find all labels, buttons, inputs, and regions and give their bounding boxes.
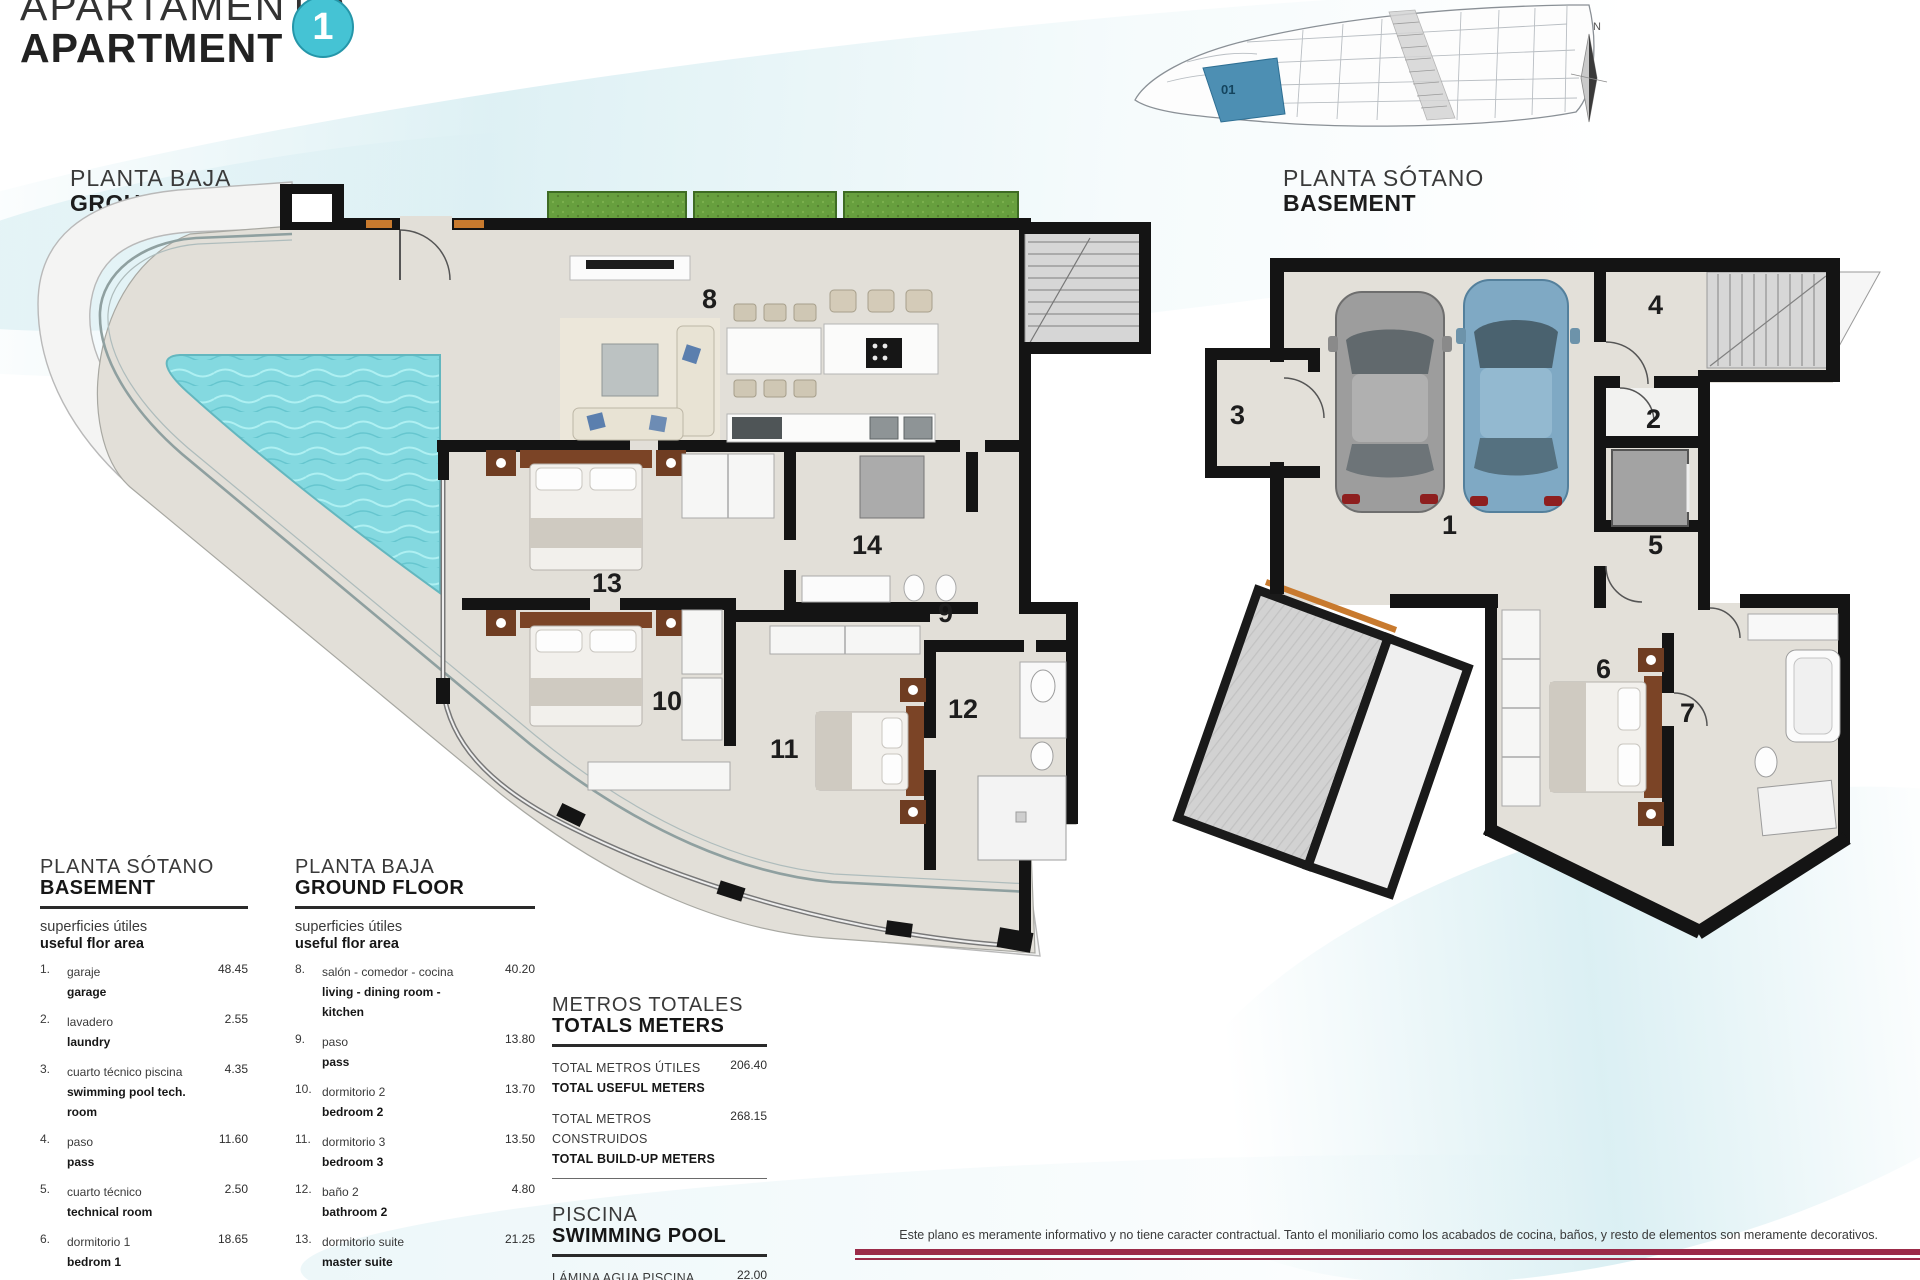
rear-window <box>1474 438 1558 476</box>
ground-floor-plan: 8 9 10 11 12 13 14 <box>30 178 1180 968</box>
room-number: 11 <box>770 734 799 764</box>
roof <box>1480 368 1552 438</box>
tail-light <box>1470 496 1488 506</box>
legend-row: 6.dormitorio 1bedrom 118.65 <box>40 1232 248 1272</box>
blanket <box>530 518 642 548</box>
mirror <box>1570 328 1580 344</box>
room-number: 6 <box>1596 654 1611 684</box>
basement-floor-plan: 1 2 3 4 5 6 7 <box>1150 178 1920 978</box>
room-number: 5 <box>1648 530 1663 560</box>
sink <box>1031 670 1055 702</box>
pool-heading-en: SWIMMING POOL <box>552 1226 767 1247</box>
rule <box>295 906 535 909</box>
legend-table-ground: PLANTA BAJA GROUND FLOOR superficies úti… <box>295 857 535 1280</box>
legend-row: 4.pasopass11.60 <box>40 1132 248 1172</box>
rule <box>552 1254 767 1257</box>
rear-window <box>1346 444 1434 478</box>
totals-row: TOTAL METROS ÚTILESTOTAL USEFUL METERS20… <box>552 1058 767 1098</box>
staircase <box>1019 222 1151 354</box>
windshield <box>1346 330 1434 375</box>
site-outline <box>1135 5 1594 126</box>
tv-screen <box>586 260 674 269</box>
totals-row: TOTAL METROS CONSTRUIDOSTOTAL BUILD-UP M… <box>552 1109 767 1169</box>
room-number: 3 <box>1230 400 1245 430</box>
legend-row: 9.pasopass13.80 <box>295 1032 535 1072</box>
toilet <box>904 575 924 601</box>
room-number: 8 <box>702 284 717 314</box>
legend-row: 5.cuarto técnicotechnical room2.50 <box>40 1182 248 1222</box>
room-number: 12 <box>948 694 978 724</box>
closet <box>682 678 722 740</box>
tail-light <box>1420 494 1438 504</box>
legend-table-basement: PLANTA SÓTANO BASEMENT superficies útile… <box>40 857 248 1280</box>
pillow <box>1618 744 1640 786</box>
pillow <box>882 718 902 748</box>
shower-drain <box>1016 812 1026 822</box>
legend-heading-es: PLANTA SÓTANO <box>40 857 248 878</box>
roof <box>1352 374 1428 442</box>
pillow <box>536 630 582 652</box>
legend-subheading-en: useful flor area <box>295 936 535 953</box>
coffee-table <box>602 344 658 396</box>
room-number: 14 <box>852 530 882 560</box>
headboard <box>1644 676 1662 798</box>
blanket <box>1550 682 1586 792</box>
toilet <box>1031 742 1053 770</box>
room-number: 13 <box>592 568 622 598</box>
staircase <box>1707 272 1880 368</box>
room-number: 1 <box>1442 510 1457 540</box>
mirror <box>1328 336 1338 352</box>
totals-heading-en: TOTALS METERS <box>552 1016 767 1037</box>
grass-planters <box>548 192 1018 219</box>
closet <box>682 610 722 674</box>
legend-row: 3.cuarto técnico piscinaswimming pool te… <box>40 1062 248 1122</box>
blanket <box>816 712 852 790</box>
entry-recess <box>292 194 332 222</box>
dining-table <box>727 328 821 374</box>
rule <box>40 906 248 909</box>
bar-stools <box>830 290 932 312</box>
shower <box>860 456 924 518</box>
car-blue <box>1456 280 1580 512</box>
divider-line-thick <box>855 1249 1920 1255</box>
elevator <box>1612 450 1688 526</box>
dining-furniture <box>727 304 821 397</box>
mirror <box>1456 328 1466 344</box>
legend-row: 13.dormitorio suitemaster suite21.25 <box>295 1232 535 1272</box>
pool-heading-es: PISCINA <box>552 1205 767 1226</box>
legend-subheading-es: superficies útiles <box>40 919 248 936</box>
room-number: 2 <box>1646 404 1661 434</box>
car-gray <box>1328 292 1452 512</box>
totals-heading-es: METROS TOTALES <box>552 995 767 1016</box>
highlighted-unit-label: 01 <box>1221 82 1235 97</box>
pillow <box>882 754 902 784</box>
room-number: 9 <box>938 598 953 628</box>
legend-row: 8.salón - comedor - cocinaliving - dinin… <box>295 962 535 1022</box>
room-number: 4 <box>1648 290 1663 320</box>
garage-ramp <box>1178 582 1468 894</box>
divider-line-thin <box>855 1258 1920 1260</box>
oven <box>904 417 932 439</box>
pillow <box>590 468 636 490</box>
legend-totals: METROS TOTALES TOTALS METERS TOTAL METRO… <box>552 995 767 1280</box>
unit-number: 1 <box>312 6 333 49</box>
legend-subheading-es: superficies útiles <box>295 919 535 936</box>
legend-row: 10.dormitorio 2bedroom 213.70 <box>295 1082 535 1122</box>
pillow <box>1618 688 1640 730</box>
tail-light <box>1544 496 1562 506</box>
vanity <box>1748 614 1838 640</box>
rule <box>552 1044 767 1047</box>
windshield <box>1474 320 1558 368</box>
kitchen-sink <box>732 417 782 439</box>
svg-text:N: N <box>1593 21 1601 33</box>
legend-row: 2.lavaderolaundry2.55 <box>40 1012 248 1052</box>
legend-row: 12.baño 2bathroom 24.80 <box>295 1182 535 1222</box>
pool-row: LÁMINA AGUA PISCINASWIMMING POOL22.00 <box>552 1268 767 1280</box>
cushion <box>649 415 667 433</box>
pillow <box>536 468 582 490</box>
legend-heading-en: BASEMENT <box>40 878 248 899</box>
tail-light <box>1342 494 1360 504</box>
floor-plan-sheet: APARTAMENTO APARTMENT 1 01 N PLANTA BAJA <box>0 0 1920 1280</box>
disclaimer-text: Este plano es meramente informativo y no… <box>899 1228 1878 1242</box>
oven <box>870 417 898 439</box>
site-key-plan: 01 N <box>1127 2 1617 142</box>
legend-heading-es: PLANTA BAJA <box>295 857 535 878</box>
room-number: 10 <box>652 686 682 716</box>
shower-tray <box>1758 780 1837 835</box>
blanket <box>530 678 642 706</box>
dresser <box>588 762 730 790</box>
legend-subheading-en: useful flor area <box>40 936 248 953</box>
vanity <box>802 576 890 602</box>
room-number: 7 <box>1680 698 1695 728</box>
toilet <box>1755 747 1777 777</box>
headboard <box>906 706 924 796</box>
legend-row: 11.dormitorio 3bedroom 313.50 <box>295 1132 535 1172</box>
mirror <box>1442 336 1452 352</box>
legend-row: 1.garajegarage48.45 <box>40 962 248 1002</box>
pillow <box>590 630 636 652</box>
cooktop <box>866 338 902 368</box>
legend-heading-en: GROUND FLOOR <box>295 878 535 899</box>
